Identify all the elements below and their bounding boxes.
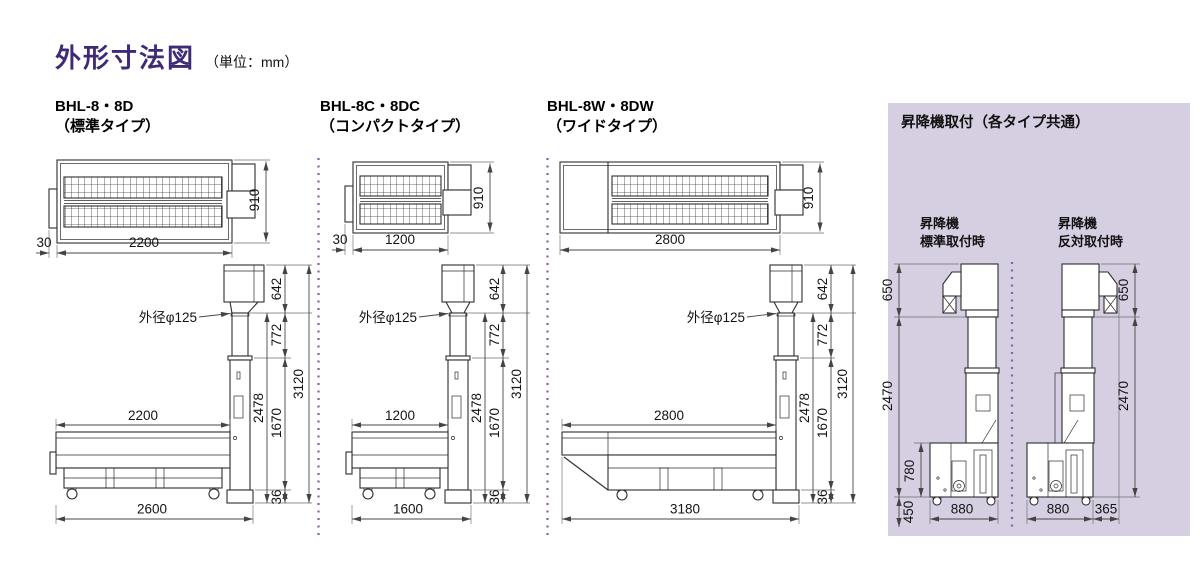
dim-pipe-height: 772 [815,324,830,347]
standard-top-view: 910 2200 30 [36,160,270,258]
dim-top-inlet: 30 [36,235,51,250]
dim-top-width: 910 [801,187,816,210]
dim-offset: 365 [1095,502,1118,517]
mount-standard-drawing: 650 2470 780 450 880 [880,264,999,527]
standard-side-view: 外径φ125 2200 2600 2478 642 772 1670 36 31… [50,265,312,524]
dim-top-width: 910 [471,187,486,210]
dim-bed-height: 1670 [815,408,830,438]
pipe-diameter-note: 外径φ125 [687,310,745,325]
dim-overall-length: 3180 [670,502,700,517]
dim-elevator-height: 2470 [1116,381,1131,411]
dim-top-length: 2800 [655,232,685,247]
dim-bed-length: 1200 [385,408,415,423]
dim-top-length: 1200 [385,232,415,247]
dim-bed-height: 1670 [269,408,284,438]
dim-bed-length: 2200 [128,408,158,423]
dim-outlet-height: 450 [901,501,916,524]
dim-base-width: 880 [1047,502,1070,517]
dim-pipe-height: 772 [269,324,284,347]
dim-overall-height: 3120 [835,369,850,399]
dim-base-height: 780 [902,460,917,483]
compact-top-view: 910 1200 30 [332,162,494,255]
dim-overall-length: 2600 [137,502,167,517]
dim-base-width: 880 [951,502,974,517]
dim-hopper-height: 642 [269,278,284,301]
mount-reversed-drawing: 650 2470 880 365 [1027,264,1140,524]
dim-bed-height: 1670 [487,408,502,438]
dim-spout-height: 650 [880,279,895,302]
pipe-diameter-note: 外径φ125 [359,310,417,325]
dim-pipe-height: 772 [487,324,502,347]
compact-side-view: 外径φ125 1200 1600 2478 642 772 1670 36 31… [346,265,530,524]
dim-base-height: 36 [487,489,502,504]
dim-elevator-height: 2470 [880,381,895,411]
dim-base-height: 36 [815,489,830,504]
dim-elevator-height: 2478 [797,393,812,423]
dim-base-height: 36 [269,489,284,504]
dim-hopper-height: 642 [487,278,502,301]
dim-overall-length: 1600 [393,502,423,517]
wide-top-view: 910 2800 [560,162,824,255]
dim-overall-height: 3120 [509,369,524,399]
wide-side-view: 外径φ125 2800 3180 2478 642 772 1670 36 31… [562,265,856,524]
dim-hopper-height: 642 [815,278,830,301]
dim-top-length: 2200 [129,235,159,250]
dim-top-inlet: 30 [332,232,347,247]
pipe-diameter-note: 外径φ125 [139,310,197,325]
dim-spout-height: 650 [1116,279,1131,302]
dim-overall-height: 3120 [291,369,306,399]
dimension-drawing: 910 2200 30 外径φ125 2200 2600 2478 642 77… [0,0,1200,583]
dim-elevator-height: 2478 [469,393,484,423]
dim-elevator-height: 2478 [251,393,266,423]
dim-top-width: 910 [247,189,262,212]
dim-bed-length: 2800 [654,408,684,423]
